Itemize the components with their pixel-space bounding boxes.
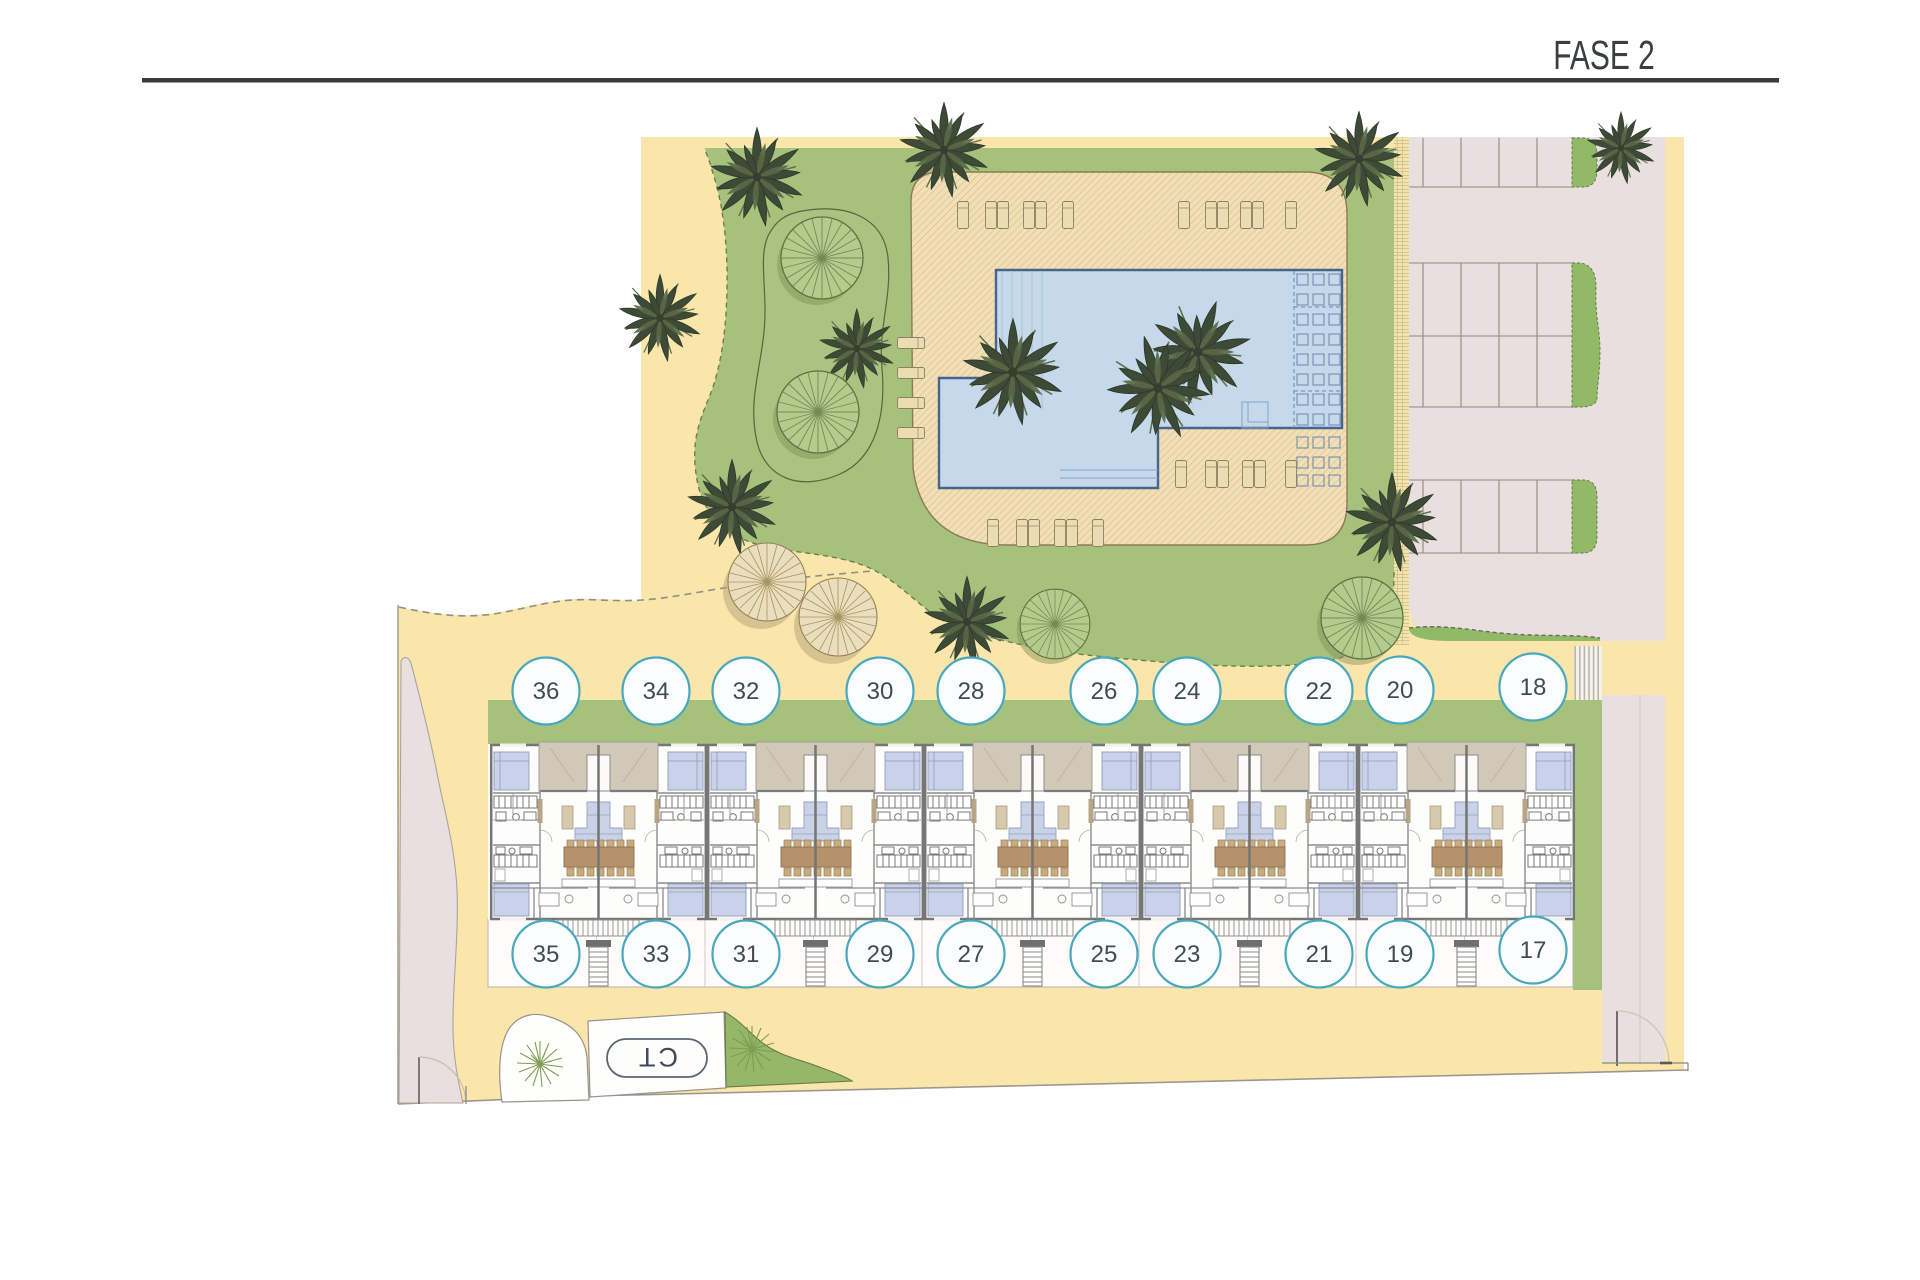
svg-text:33: 33: [643, 941, 670, 968]
svg-text:20: 20: [1387, 677, 1414, 704]
svg-text:28: 28: [958, 678, 985, 705]
svg-text:27: 27: [958, 941, 985, 968]
svg-text:22: 22: [1306, 678, 1333, 705]
svg-text:FASE 2: FASE 2: [1553, 32, 1654, 78]
svg-text:19: 19: [1387, 941, 1414, 968]
svg-text:CT: CT: [636, 1042, 678, 1072]
svg-text:21: 21: [1306, 941, 1333, 968]
svg-text:32: 32: [733, 678, 760, 705]
svg-text:17: 17: [1520, 937, 1547, 964]
svg-text:24: 24: [1174, 678, 1201, 705]
svg-text:18: 18: [1520, 674, 1547, 701]
svg-text:30: 30: [867, 678, 894, 705]
svg-text:31: 31: [733, 941, 760, 968]
svg-text:23: 23: [1174, 941, 1201, 968]
svg-text:25: 25: [1091, 941, 1118, 968]
svg-text:35: 35: [533, 941, 560, 968]
svg-text:36: 36: [533, 678, 560, 705]
svg-text:34: 34: [643, 678, 670, 705]
svg-text:29: 29: [867, 941, 894, 968]
svg-text:26: 26: [1091, 678, 1118, 705]
